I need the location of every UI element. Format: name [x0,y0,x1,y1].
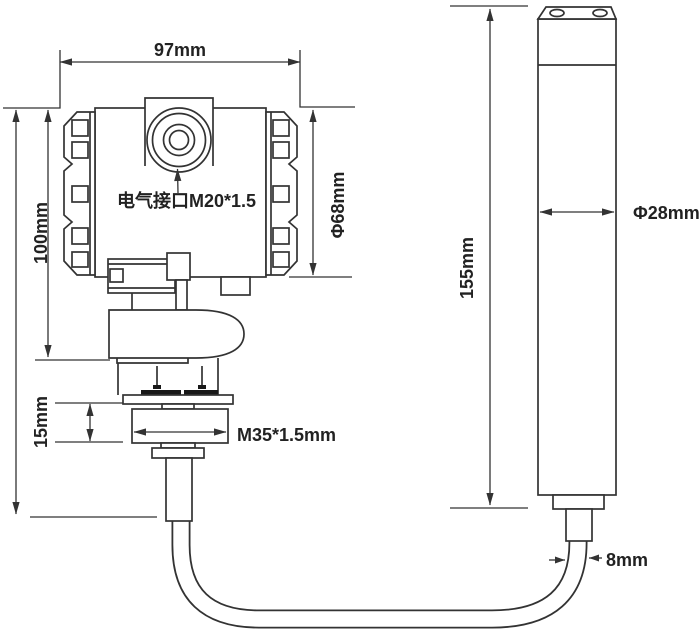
gland-collar [152,448,204,458]
probe-body [538,19,616,495]
dim-label-thread-height: 15mm [31,396,51,448]
side-bracket [221,277,250,295]
dim-label-thread-spec: M35*1.5mm [237,425,336,445]
dim-label-width: 97mm [154,40,206,60]
dim-label-probe-length: 155mm [457,237,477,299]
probe-step [553,495,604,509]
cable-fill [181,512,578,619]
cap-rib [72,228,88,244]
process-connection [123,395,233,521]
cap-rib [72,252,88,267]
cable-outline [181,512,578,619]
cable-gland [166,458,192,521]
cap-rib [273,252,289,267]
cap-rib [273,228,289,244]
label-electrical-port: 电气接口M20*1.5 [117,190,256,211]
dim-arrowhead [555,557,565,564]
transmitter-view [64,98,297,521]
yoke [109,310,244,358]
end-cap-left [64,112,95,275]
dim-label-cable-diameter: 8mm [606,550,648,570]
cap-rib [273,120,289,136]
vent-block [167,253,190,280]
dim-cable-diameter-8: 8mm [549,550,648,570]
port-ring-inner [170,131,189,150]
dim-housing-diameter-68: Φ68mm [289,110,352,277]
end-cap-right [266,112,297,275]
neck-column [176,280,187,310]
probe-view [538,7,616,541]
dim-label-probe-diameter: Φ28mm [633,203,700,223]
probe-vent-hole [593,10,607,17]
probe-neck [566,509,592,541]
dimension-drawing-canvas: 97mm 100mm Φ68mm 15mm M35*1.5mm 电气接口M20*… [0,0,700,629]
terminal-block [110,269,123,282]
cap-rib [72,186,88,202]
thread-section [132,409,228,443]
dim-ext-line [3,50,60,108]
transmitter-dimension-drawing: 97mm 100mm Φ68mm 15mm M35*1.5mm 电气接口M20*… [0,0,700,629]
probe-vent-hole [550,10,564,17]
flange-plate [123,395,233,404]
electrical-port [145,98,213,172]
pin-foot [198,385,206,389]
pin-foot [153,385,161,389]
dim-ext-line [300,50,355,107]
cap-rib [72,120,88,136]
dim-thread-height-15: 15mm [31,396,123,448]
cap-rib [273,186,289,202]
dim-label-height: 100mm [31,202,51,264]
cap-rib [273,142,289,158]
dim-label-housing-diameter: Φ68mm [328,172,348,239]
dim-probe-length-155: 155mm [450,6,528,508]
cap-rib [72,142,88,158]
dim-arrowhead [589,555,599,562]
process-body [109,310,244,396]
connection-cable [181,512,578,619]
callout-arrow [178,169,179,193]
